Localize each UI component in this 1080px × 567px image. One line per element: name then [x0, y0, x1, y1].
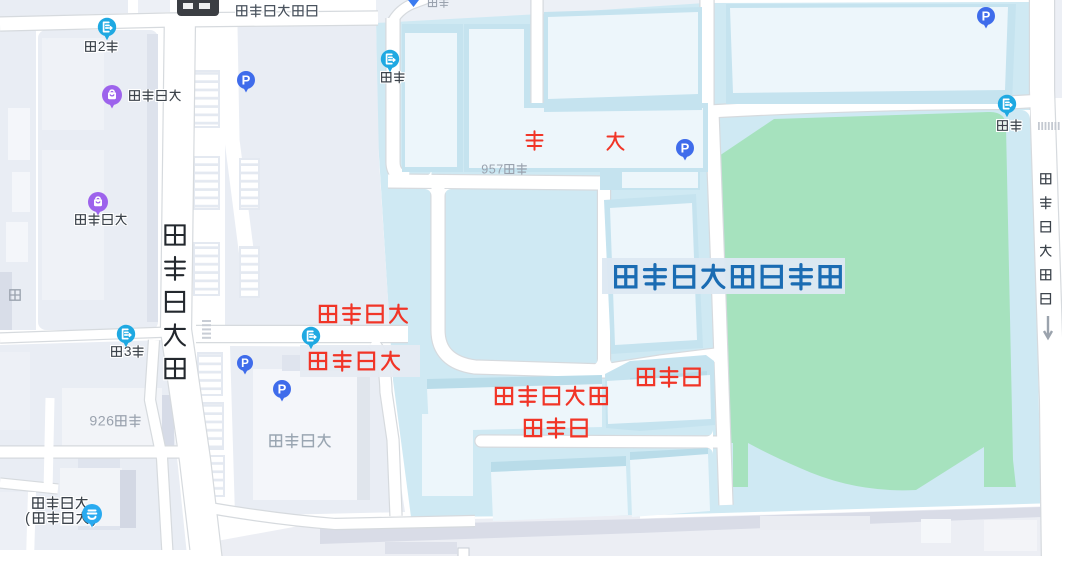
svg-text:P: P: [982, 9, 991, 24]
svg-text:P: P: [681, 141, 690, 156]
svg-text:2: 2: [98, 414, 106, 430]
svg-text:3: 3: [124, 344, 132, 359]
svg-text:2: 2: [98, 39, 106, 54]
svg-text:7: 7: [496, 162, 503, 176]
svg-text:9: 9: [89, 414, 97, 430]
svg-text:(: (: [25, 511, 30, 527]
svg-text:5: 5: [489, 162, 496, 176]
svg-text:P: P: [242, 73, 251, 88]
svg-text:6: 6: [106, 414, 114, 430]
svg-text:9: 9: [481, 162, 488, 176]
svg-text:P: P: [278, 382, 287, 397]
svg-text:P: P: [241, 357, 249, 370]
